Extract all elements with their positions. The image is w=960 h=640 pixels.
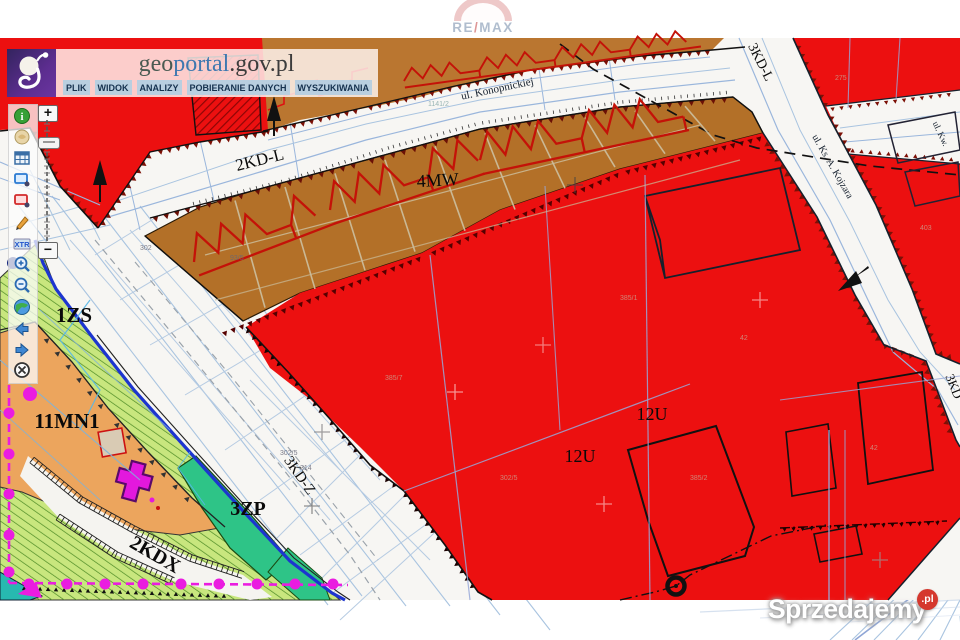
svg-text:RE/MAX: RE/MAX — [452, 20, 514, 35]
svg-text:385/1: 385/1 — [620, 295, 638, 302]
svg-text:11MN1: 11MN1 — [34, 409, 99, 433]
svg-text:42: 42 — [740, 335, 748, 342]
svg-text:i: i — [20, 111, 23, 123]
svg-text:12U: 12U — [637, 404, 668, 424]
svg-text:42: 42 — [870, 445, 878, 452]
svg-text:403: 403 — [920, 225, 932, 232]
svg-text:XTR: XTR — [15, 240, 31, 249]
svg-text:302: 302 — [140, 245, 152, 252]
svg-text:93/5: 93/5 — [230, 255, 244, 262]
svg-text:3ZP: 3ZP — [230, 498, 266, 520]
svg-text:1ZS: 1ZS — [56, 303, 92, 327]
svg-text:12U: 12U — [565, 446, 596, 466]
svg-text:385/7: 385/7 — [385, 375, 403, 382]
svg-text:385/2: 385/2 — [690, 475, 708, 482]
svg-text:302/5: 302/5 — [500, 475, 518, 482]
svg-text:4MW: 4MW — [416, 169, 459, 191]
svg-text:1141/2: 1141/2 — [428, 101, 449, 108]
svg-text:275: 275 — [835, 75, 847, 82]
